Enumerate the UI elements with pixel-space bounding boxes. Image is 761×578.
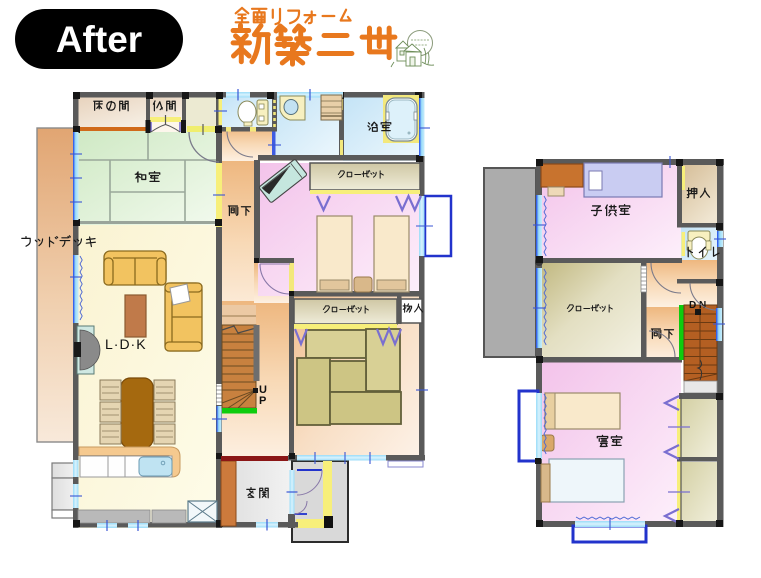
svg-text:After: After	[56, 19, 142, 60]
svg-text:L·D·K: L·D·K	[105, 336, 147, 352]
svg-text:P: P	[259, 395, 266, 407]
